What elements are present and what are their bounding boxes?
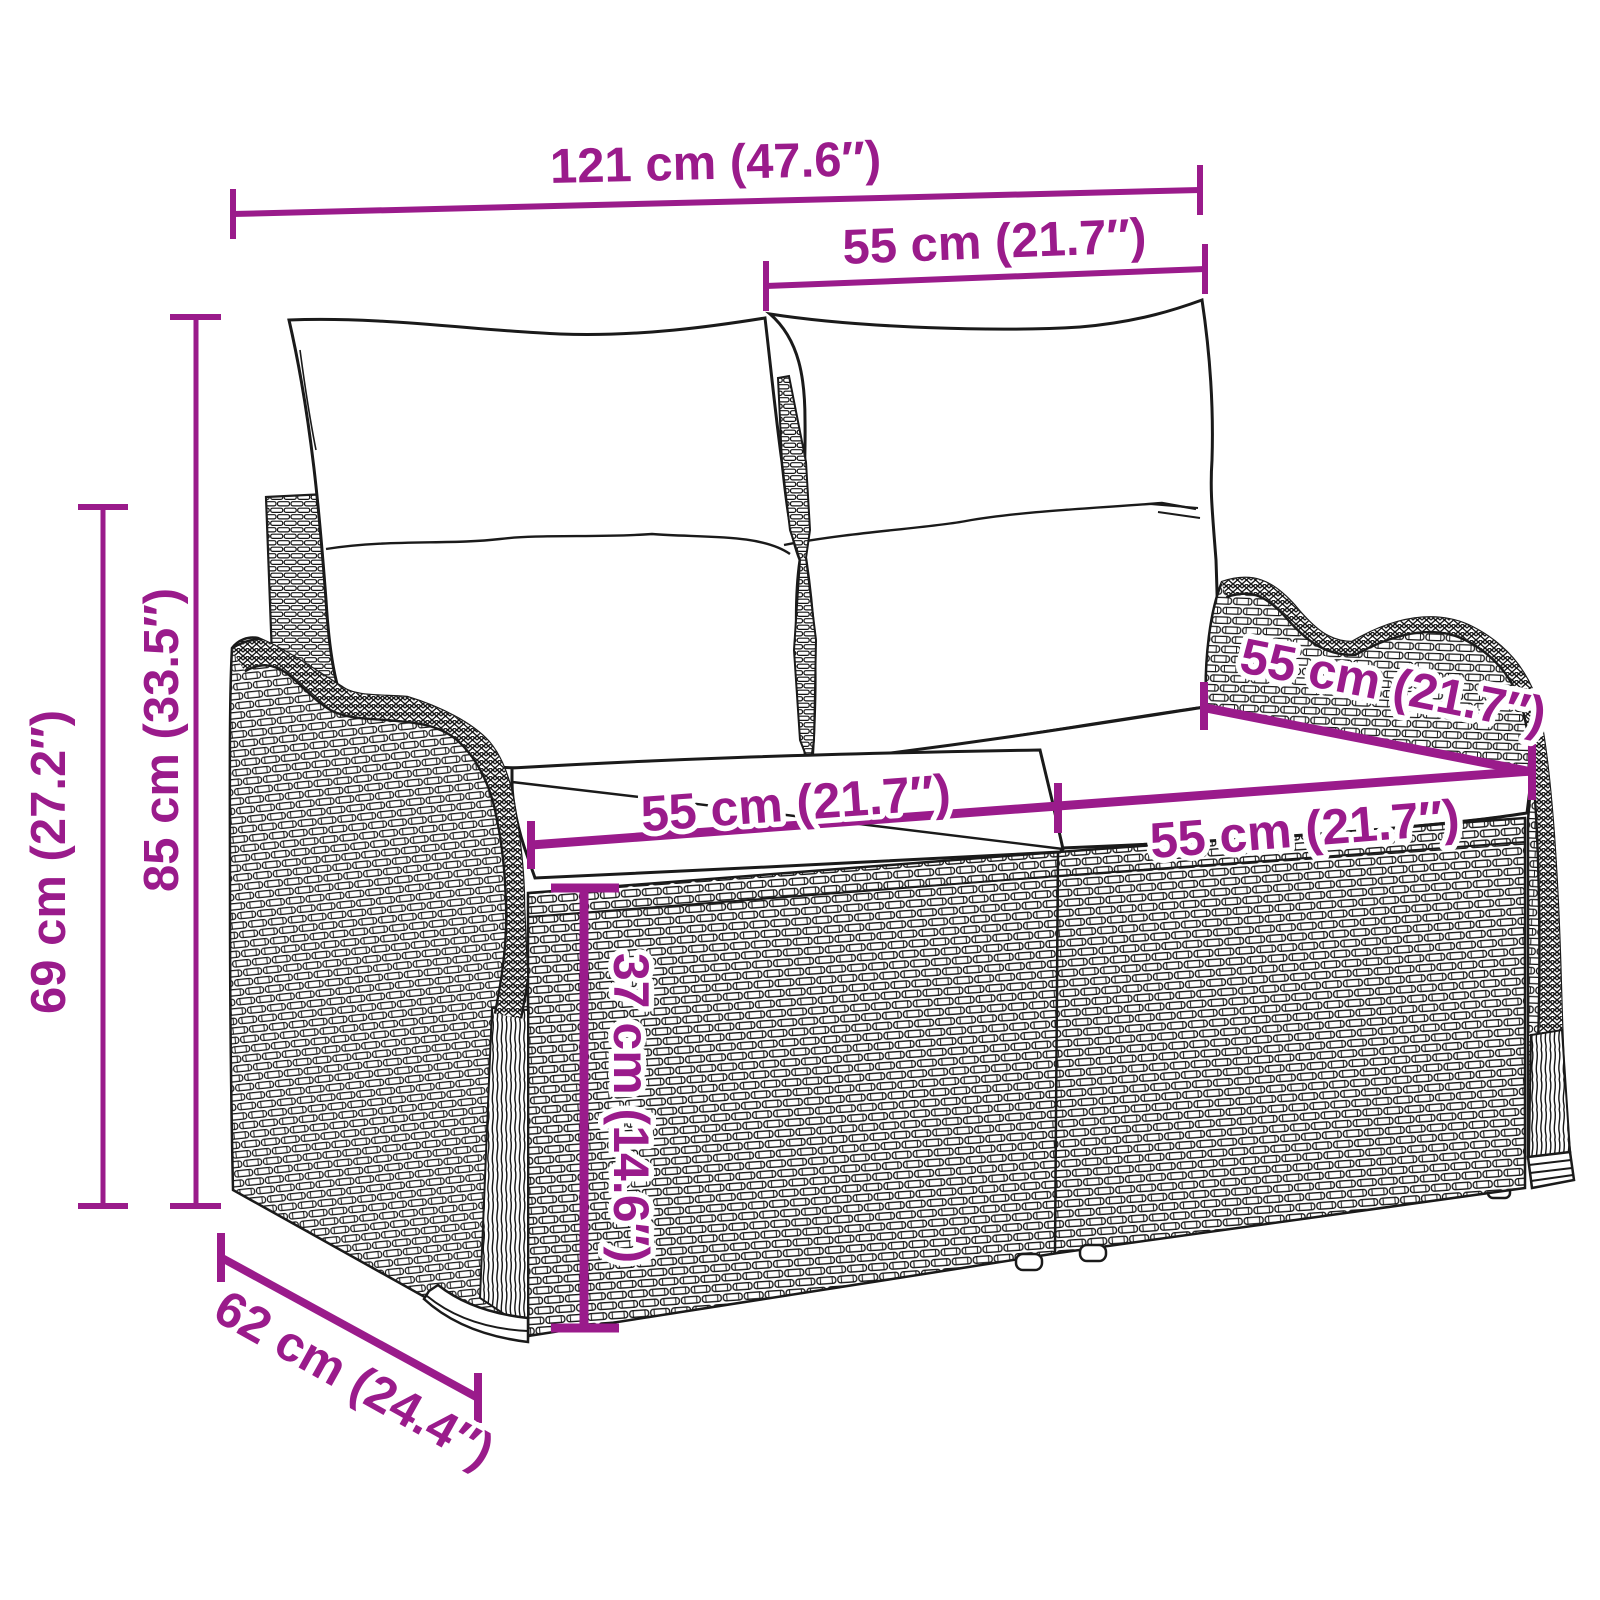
- svg-text:69 cm (27.2″): 69 cm (27.2″): [22, 710, 76, 1014]
- svg-text:121 cm (47.6″): 121 cm (47.6″): [549, 132, 882, 194]
- svg-text:85 cm (33.5″): 85 cm (33.5″): [135, 588, 189, 892]
- svg-text:37 cm (14.6″): 37 cm (14.6″): [603, 953, 659, 1263]
